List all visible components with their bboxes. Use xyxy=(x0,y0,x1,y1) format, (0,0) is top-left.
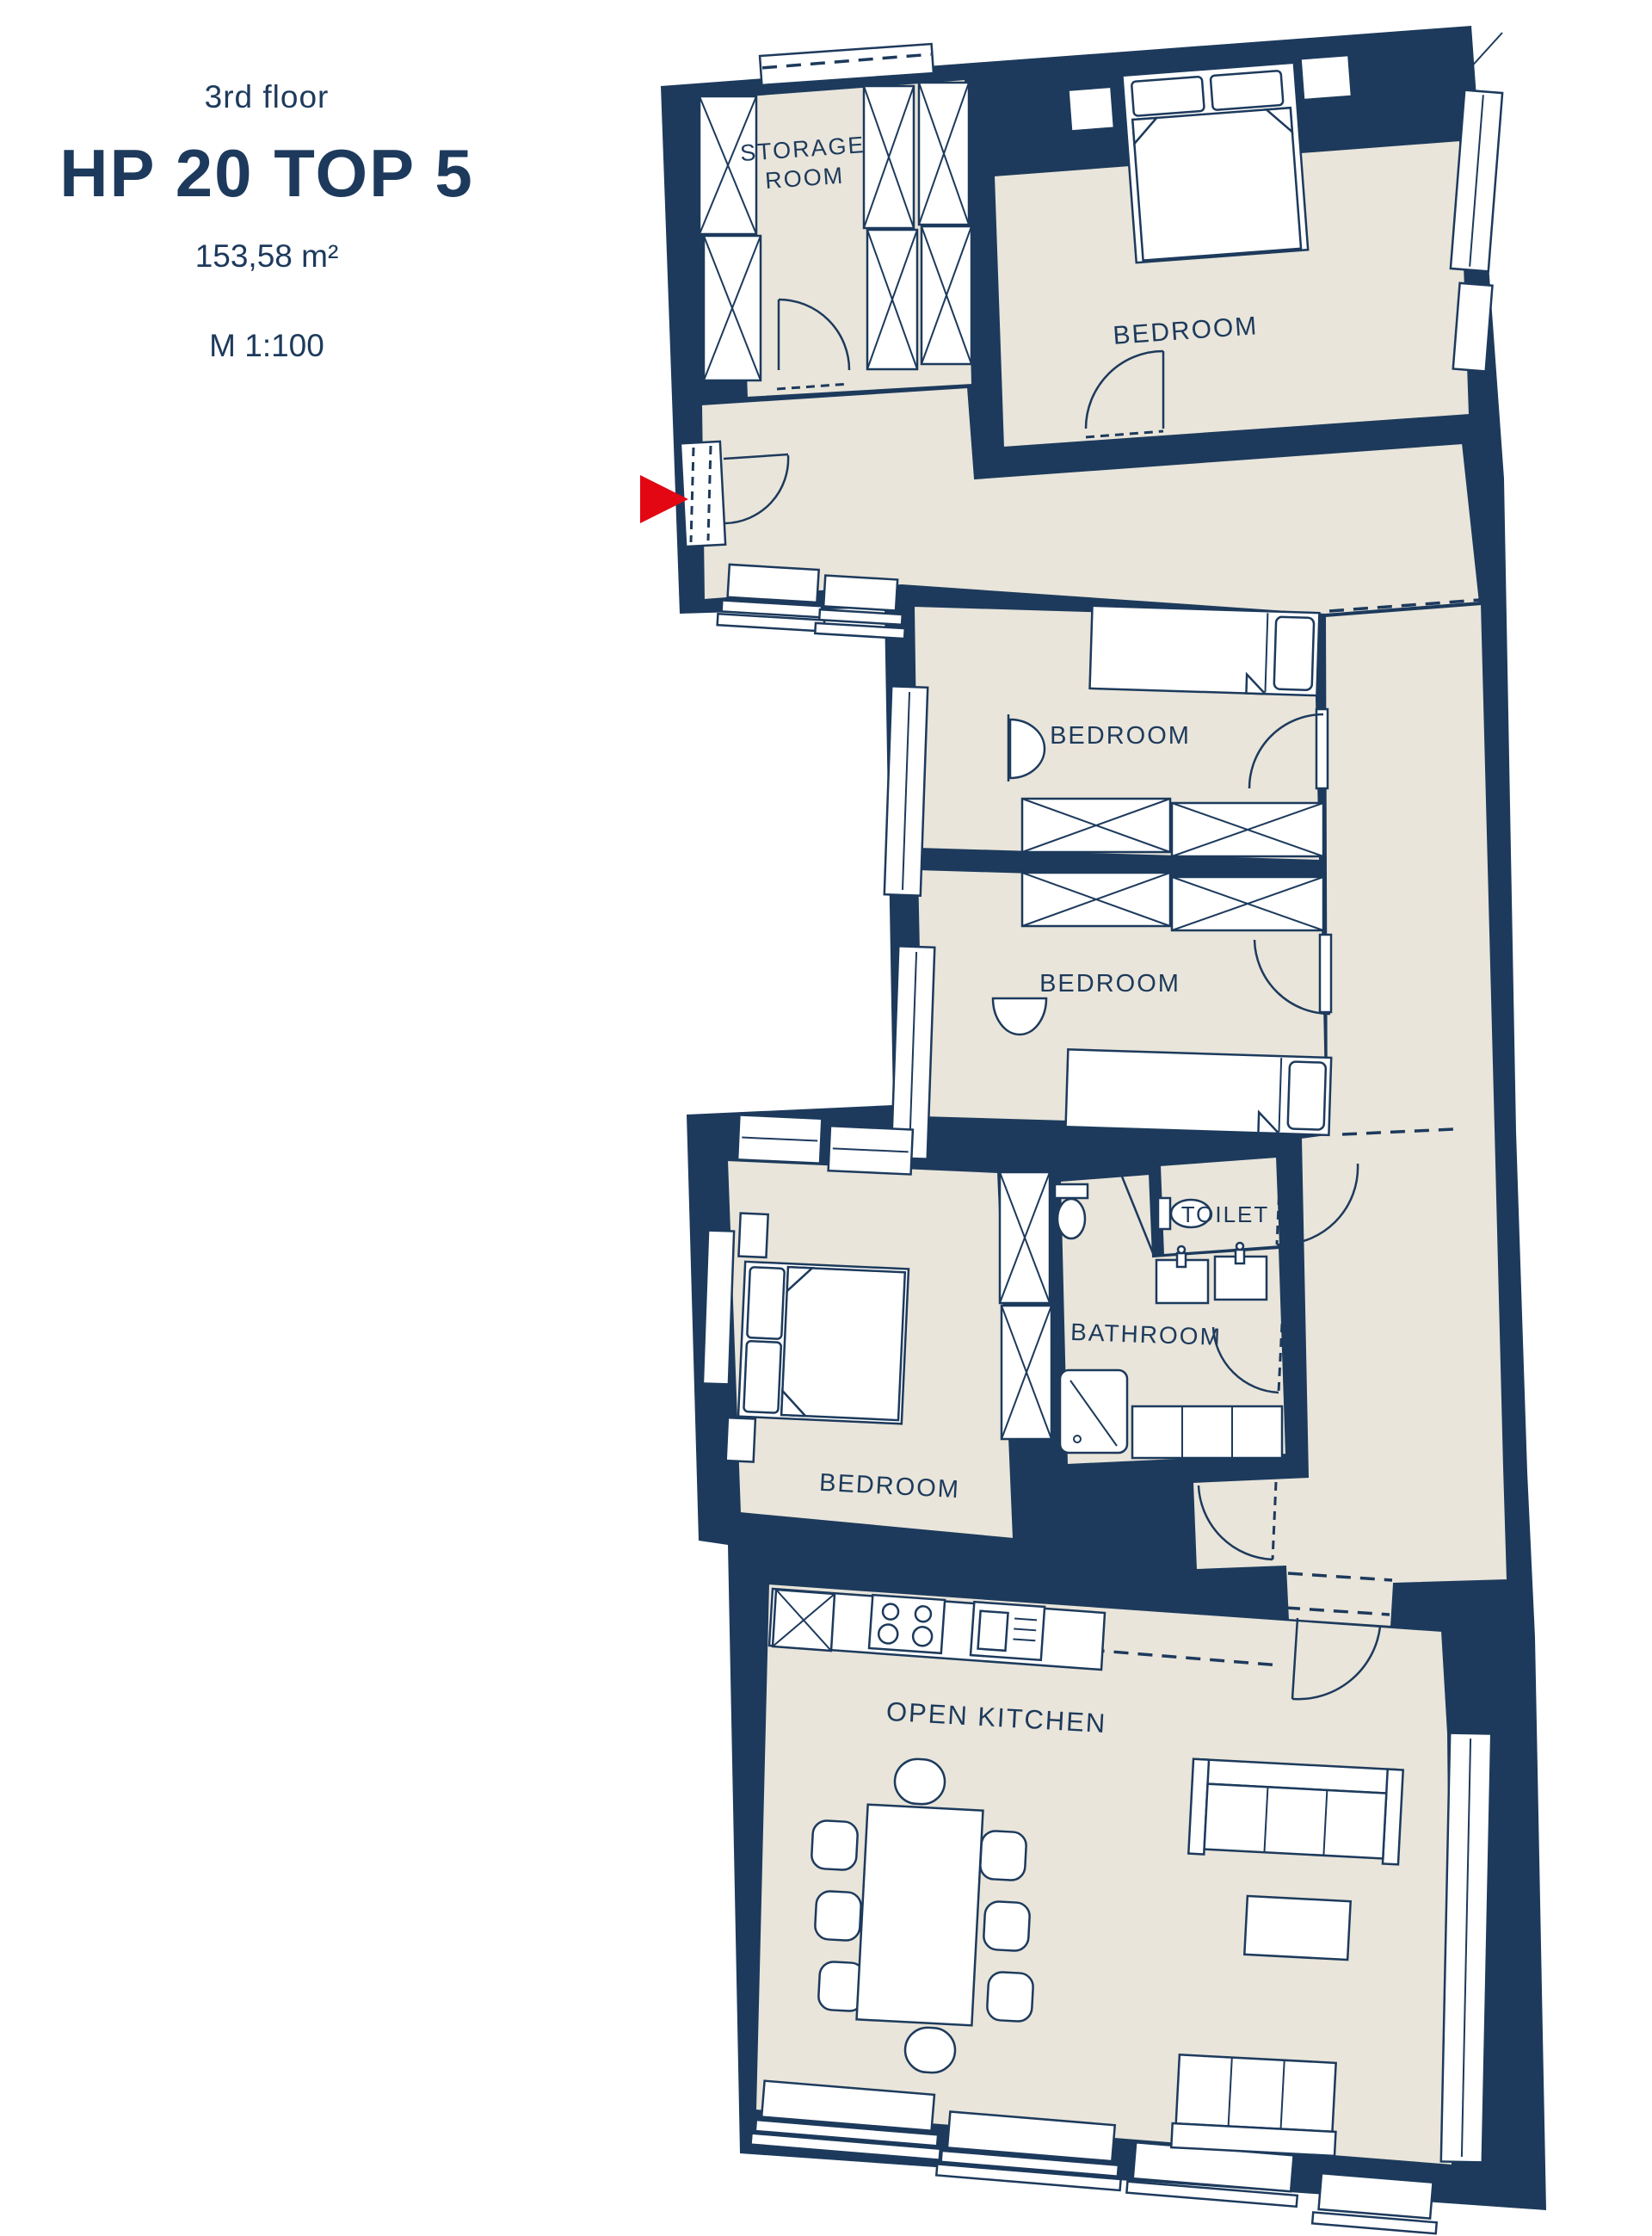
sofa-small xyxy=(1171,2054,1339,2156)
bedroom-lower-wardrobe xyxy=(1000,1172,1051,1439)
storage-label-line2: ROOM xyxy=(764,163,845,194)
sofa-large xyxy=(1188,1759,1402,1865)
toilet-label: TOILET xyxy=(1181,1201,1270,1227)
shower-tray xyxy=(1060,1370,1127,1453)
bathroom-label: BATHROOM xyxy=(1070,1319,1223,1350)
bedroom-middle-upper-label: BEDROOM xyxy=(1050,722,1191,750)
bed-middle-upper xyxy=(1090,606,1320,695)
floor-plan: STORAGE ROOM BEDROOM BEDROOM BEDROOM TOI… xyxy=(0,0,1652,2236)
bathroom-counter xyxy=(1132,1406,1282,1458)
bedroom-middle-lower-label: BEDROOM xyxy=(1039,970,1180,998)
bed-middle-lower xyxy=(1066,1049,1332,1135)
room-open-kitchen xyxy=(755,1584,1452,2165)
coffee-table xyxy=(1244,1896,1350,1960)
kitchen-right-window xyxy=(1441,1733,1491,2163)
floorplan-page: 3rd floor HP 20 TOP 5 153,58 m² M 1:100 xyxy=(0,0,1652,2236)
bathroom-wc xyxy=(1055,1184,1088,1238)
